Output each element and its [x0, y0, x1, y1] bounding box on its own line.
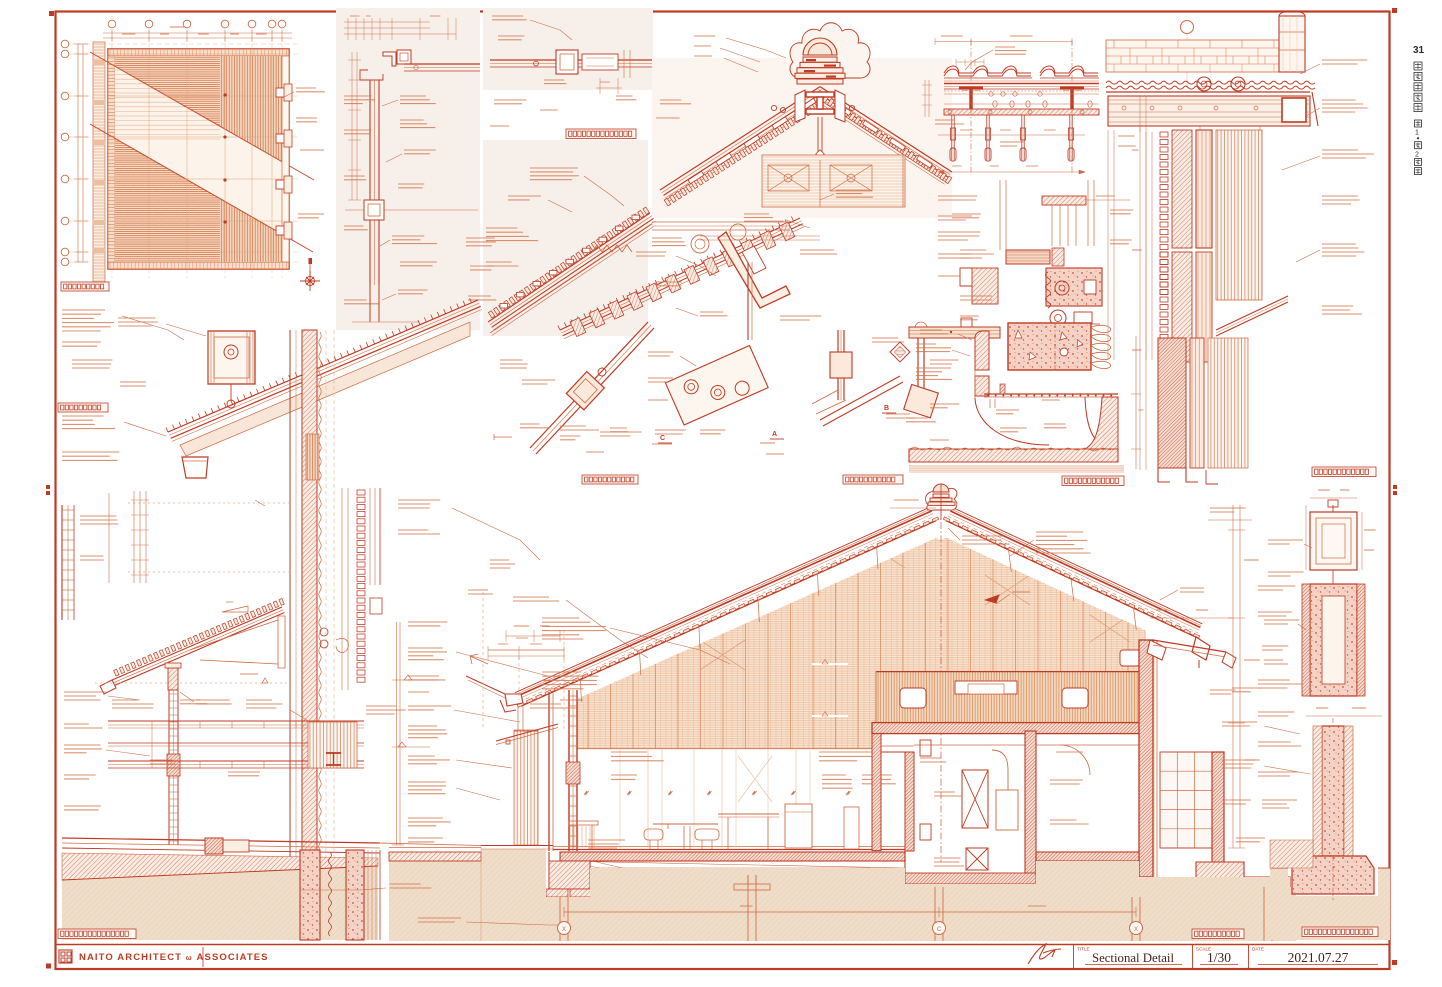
- svg-text:A: A: [772, 431, 777, 438]
- svg-text:TITLE: TITLE: [1077, 947, 1090, 952]
- svg-text:2: 2: [1415, 151, 1419, 158]
- svg-text:X: X: [1134, 927, 1138, 933]
- svg-text:2021.07.27: 2021.07.27: [1288, 950, 1349, 965]
- svg-text:Sectional Detail: Sectional Detail: [1092, 951, 1175, 965]
- svg-text:B: B: [884, 405, 889, 412]
- svg-text:1/30: 1/30: [1207, 950, 1231, 965]
- svg-text:X: X: [562, 927, 566, 933]
- svg-text:NAITO ARCHITECT ω ASSOCIATES: NAITO ARCHITECT ω ASSOCIATES: [79, 952, 269, 963]
- svg-text:C: C: [937, 927, 942, 933]
- svg-text:31: 31: [1413, 45, 1425, 56]
- svg-text:DATE: DATE: [1252, 947, 1264, 952]
- svg-text:1: 1: [1415, 130, 1419, 137]
- svg-text:C: C: [660, 435, 665, 442]
